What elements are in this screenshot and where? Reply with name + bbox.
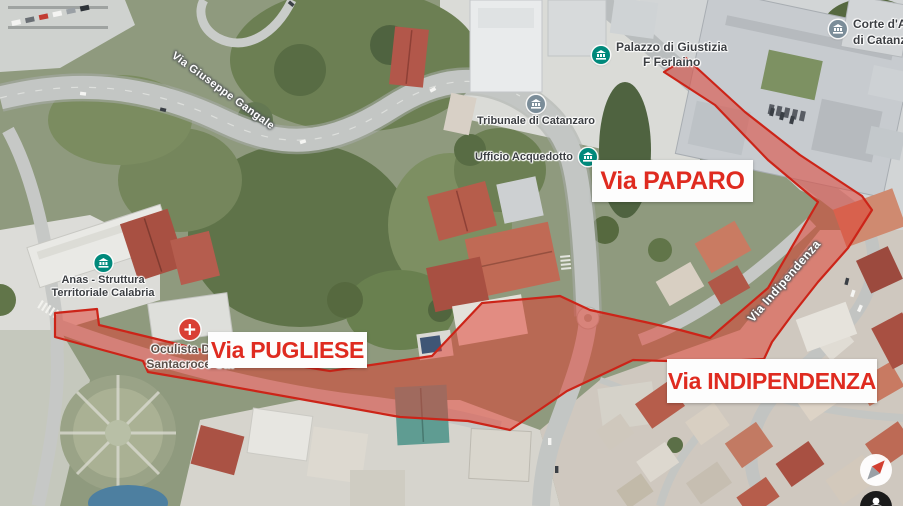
poi-palazzo-giustizia[interactable]: Palazzo di Giustizia F Ferlaino xyxy=(592,40,727,70)
pegman-icon[interactable] xyxy=(858,491,894,506)
courthouse-icon[interactable] xyxy=(527,95,545,113)
highlight-box-indipendenza: Via INDIPENDENZA xyxy=(667,359,877,403)
satellite-map[interactable]: Via Giuseppe Gangale Via Indipendenza Tr… xyxy=(0,0,903,506)
compass-icon[interactable] xyxy=(858,452,894,488)
medical-pin-icon[interactable] xyxy=(180,319,201,340)
poi-ufficio-acquedotto[interactable]: Ufficio Acquedotto xyxy=(475,148,597,166)
highlight-box-pugliese: Via PUGLIESE xyxy=(208,332,367,368)
poi-tribunale[interactable]: Tribunale di Catanzaro xyxy=(477,95,595,128)
poi-corte-appello[interactable]: Corte d'Appello di Catanzaro xyxy=(829,16,903,48)
government-building-icon[interactable] xyxy=(592,46,610,64)
government-building-icon[interactable] xyxy=(94,254,112,272)
poi-anas[interactable]: Anas - Struttura Territoriale Calabria xyxy=(51,254,154,300)
highlight-box-paparo: Via PAPARO xyxy=(592,160,753,202)
courthouse-icon[interactable] xyxy=(829,20,847,38)
aerial-imagery xyxy=(0,0,903,506)
